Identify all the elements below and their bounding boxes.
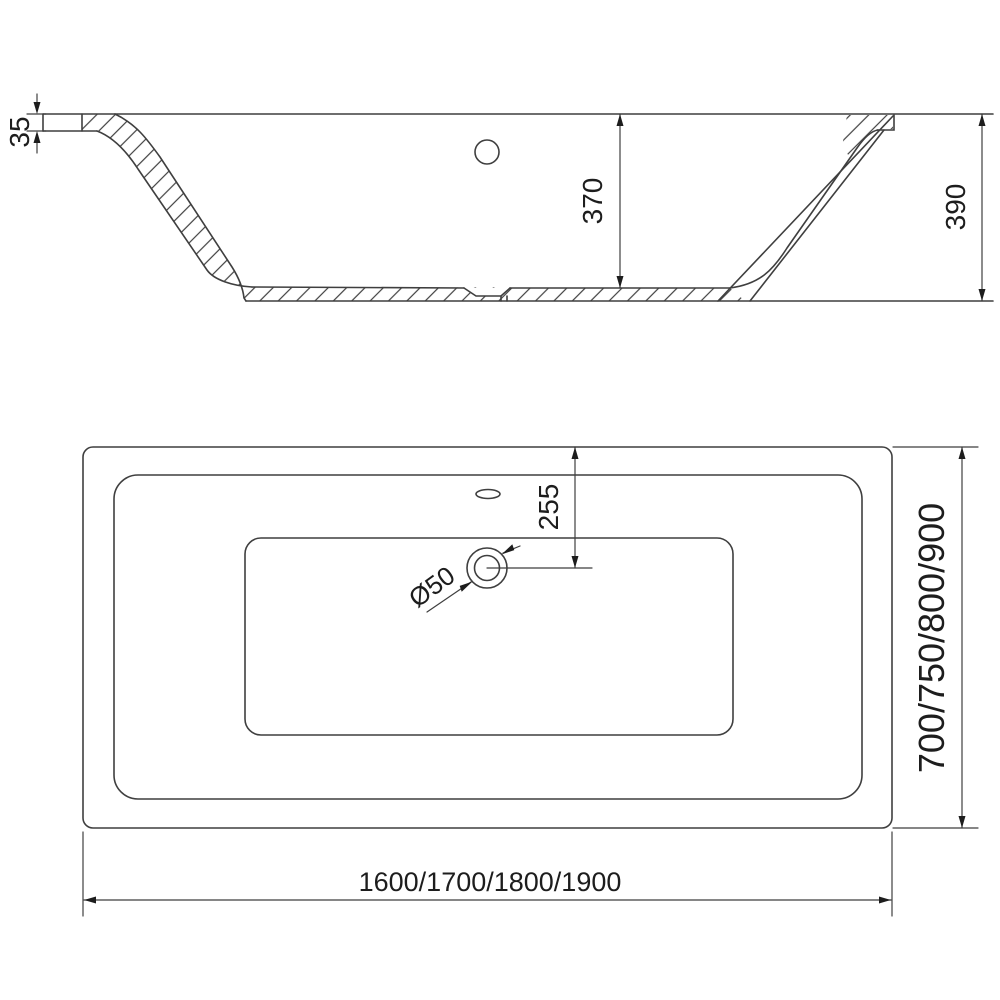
arrow-down-left-icon (502, 544, 515, 554)
dim-length-options: 1600/1700/1800/1900 (83, 832, 892, 916)
tub-rim-inner-edge (114, 475, 862, 799)
tub-shell-hatch (82, 114, 745, 301)
arrow-down-icon (617, 276, 624, 288)
dim-rim-thickness: 35 (4, 94, 46, 153)
arrow-up-icon (979, 114, 986, 126)
dim-drain-diameter-label: Ø50 (403, 560, 460, 613)
arrow-up-right-icon (460, 582, 473, 592)
arrow-right-icon (879, 897, 891, 904)
arrow-left-icon (84, 897, 96, 904)
dim-total-height: 390 (940, 114, 986, 301)
dim-rim-thickness-label: 35 (4, 116, 35, 147)
dim-drain-offset-label: 255 (533, 484, 564, 531)
dim-inner-depth: 370 (577, 114, 624, 288)
arrow-up-icon (617, 114, 624, 126)
dim-drain-offset: 255 (533, 447, 579, 568)
plan-view: Ø50 255 700/750/800/900 1600/1700/1800/1… (83, 447, 978, 916)
dim-width-options-label: 700/750/800/900 (911, 503, 952, 773)
overflow-hole-section (475, 140, 499, 164)
right-wall-outer (750, 130, 884, 301)
arrow-up-icon (959, 447, 966, 459)
bottom-inner-line-left (252, 287, 464, 288)
right-wall-cross (718, 116, 893, 301)
dim-inner-depth-label: 370 (577, 178, 608, 225)
overflow-hole-plan (476, 490, 500, 499)
section-view: 35 370 390 (4, 94, 993, 301)
arrow-down-icon (979, 289, 986, 301)
right-rim-hatch (842, 115, 893, 159)
bathtub-technical-drawing: 35 370 390 (0, 0, 1000, 1000)
arrow-down-icon (959, 816, 966, 828)
drawing-canvas: 35 370 390 (0, 0, 1000, 1000)
tub-outer-outline (83, 447, 892, 828)
dim-width-options: 700/750/800/900 (893, 447, 978, 828)
arrow-down-icon (34, 102, 41, 114)
dim-total-height-label: 390 (940, 184, 971, 231)
arrow-down-icon (572, 556, 579, 568)
arrow-up-icon (572, 447, 579, 459)
dim-length-options-label: 1600/1700/1800/1900 (359, 867, 622, 897)
